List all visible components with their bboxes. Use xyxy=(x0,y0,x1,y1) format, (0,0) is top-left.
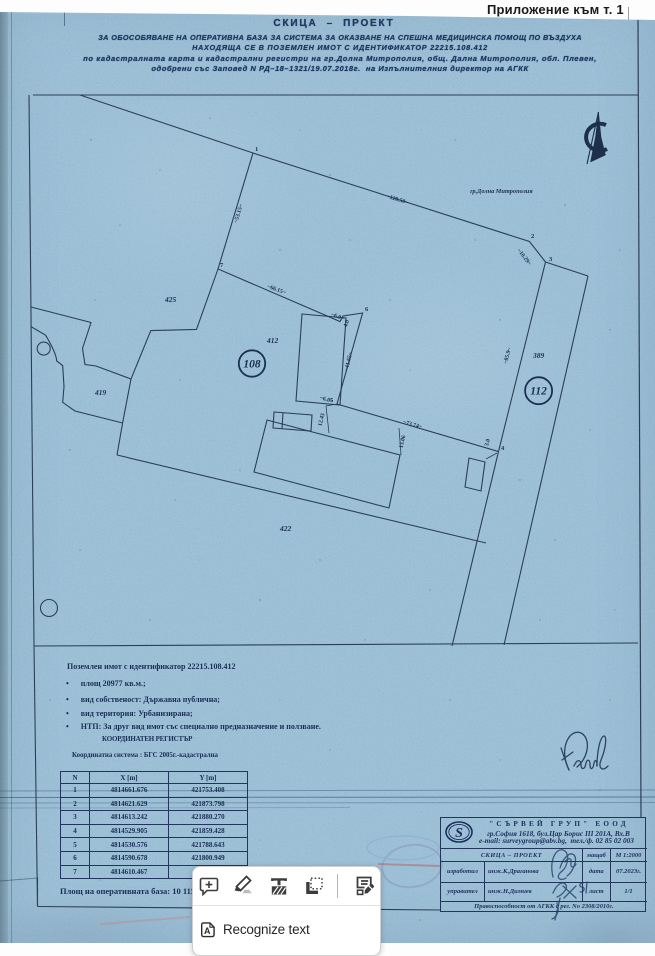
svg-text:1: 1 xyxy=(255,146,258,153)
svg-text:108: 108 xyxy=(243,359,261,371)
svg-text:419: 419 xyxy=(94,388,107,397)
svg-text:112: 112 xyxy=(530,386,547,398)
svg-text:425: 425 xyxy=(164,295,177,304)
svg-text:412: 412 xyxy=(266,336,279,345)
svg-text:389: 389 xyxy=(532,351,545,360)
svg-text:2: 2 xyxy=(531,233,534,240)
svg-text:S: S xyxy=(455,826,463,841)
svg-text:A: A xyxy=(204,926,211,936)
svg-text:гр.Долна Митрополия: гр.Долна Митрополия xyxy=(470,188,533,195)
svg-text:422: 422 xyxy=(279,524,292,533)
